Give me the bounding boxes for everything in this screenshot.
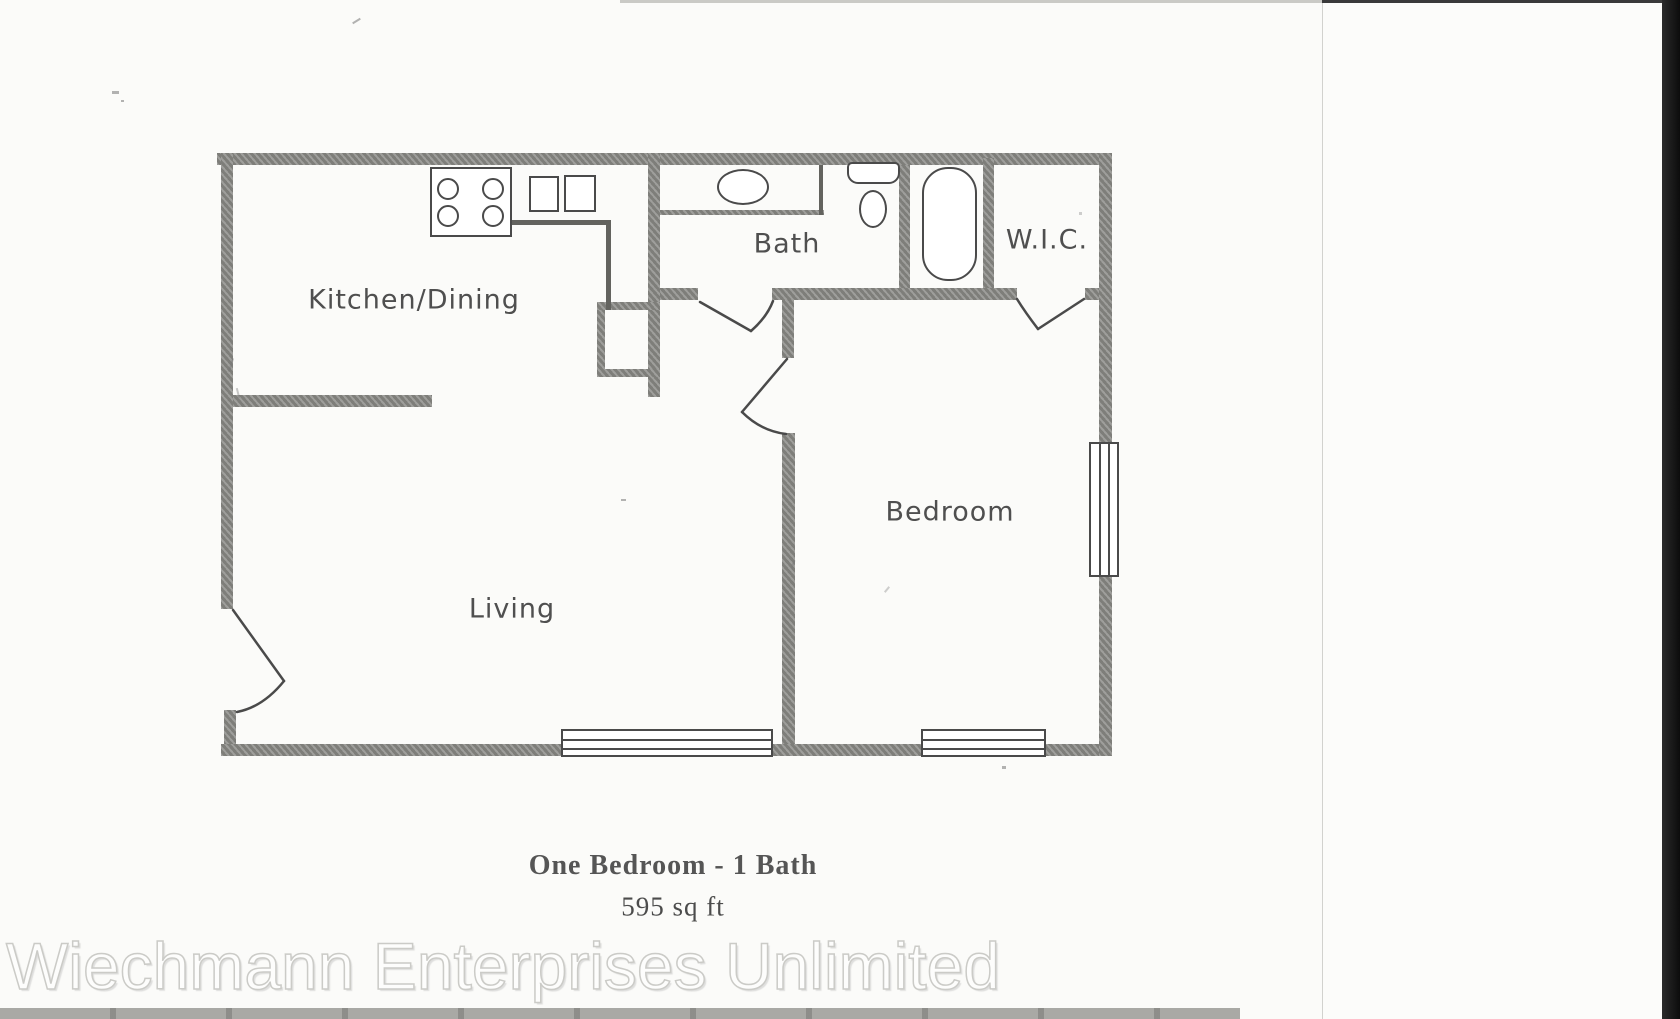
scan-speck [884, 586, 890, 593]
stove-icon [430, 167, 512, 237]
page-edge-line [1322, 0, 1323, 1019]
window-mullion [1108, 444, 1110, 575]
scan-speck [121, 100, 124, 102]
stove-burner-icon [482, 205, 504, 227]
kitchen-counter-edge [512, 220, 611, 225]
bedroom-door-arc [742, 412, 786, 434]
vanity-sink-icon [717, 169, 769, 205]
wall-bath-bedroom-north [772, 288, 1017, 300]
stove-burner-icon [437, 205, 459, 227]
window-mullion [563, 739, 771, 741]
vanity-counter-edge [660, 210, 824, 215]
window-mullion [563, 748, 771, 750]
stove-burner-icon [437, 178, 459, 200]
window-mullion [923, 748, 1044, 750]
wall-tub-wic-divider [983, 158, 994, 288]
toilet-tank-icon [847, 162, 900, 184]
room-label-bedroom: Bedroom [885, 497, 1014, 528]
toilet-bowl-icon [859, 190, 887, 228]
scanned-floorplan-page: Kitchen/Dining Bath W.I.C. Bedroom Livin… [0, 0, 1680, 1019]
bath-door-arc [751, 301, 773, 331]
wall-east-upper [1099, 153, 1112, 442]
kitchen-counter-return [606, 220, 611, 310]
wall-bedroom-west-lower [782, 433, 795, 744]
entry-door-leaf [233, 610, 284, 681]
bath-door-leaf [700, 302, 751, 331]
room-label-living: Living [469, 594, 555, 625]
room-label-bath: Bath [754, 229, 821, 260]
scanner-background-right [1323, 0, 1662, 1019]
pantry-wall-left [597, 302, 605, 377]
wall-bath-tub-divider [899, 165, 910, 288]
wall-kitchen-living-stub [233, 395, 432, 407]
caption-area: 595 sq ft [621, 892, 725, 923]
window-bedroom-south [921, 729, 1046, 757]
window-mullion [1099, 444, 1101, 575]
window-living-south [561, 729, 773, 757]
scan-top-edge-light [620, 0, 1322, 3]
kitchen-sink-basin-icon [564, 175, 596, 212]
scan-speck [1002, 766, 1006, 769]
scan-top-edge-dark [1322, 0, 1662, 3]
wic-door-leaf [1038, 299, 1084, 329]
wic-door-arc [1017, 299, 1038, 329]
wall-bedroom-west-upper [782, 300, 794, 358]
scan-speck [621, 499, 626, 501]
bathtub-icon [922, 167, 977, 281]
room-label-kitchen-dining: Kitchen/Dining [308, 285, 520, 316]
window-bedroom-east [1089, 442, 1119, 577]
wall-north [217, 153, 1112, 165]
scan-speck [352, 18, 361, 24]
pantry-wall-bottom [597, 369, 660, 377]
wall-bath-south-left [660, 288, 698, 300]
stove-burner-icon [482, 178, 504, 200]
bedroom-door-leaf [742, 359, 787, 412]
wall-wic-south-stub [1085, 288, 1099, 300]
wall-west-upper [221, 153, 233, 609]
scanner-black-strip [1662, 0, 1680, 1019]
scan-bottom-band [0, 1008, 1240, 1019]
watermark-text: Wiechmann Enterprises Unlimited [6, 928, 1000, 1004]
wall-east-lower [1099, 577, 1112, 756]
entry-door-arc [237, 681, 284, 712]
window-mullion [923, 739, 1044, 741]
kitchen-sink-basin-icon [529, 176, 559, 212]
scan-speck [112, 91, 119, 94]
caption-title: One Bedroom - 1 Bath [529, 850, 818, 882]
vanity-counter-end [819, 165, 823, 215]
wall-kitchen-hall [648, 153, 660, 397]
room-label-wic: W.I.C. [1006, 225, 1088, 256]
scan-speck [1079, 212, 1082, 215]
